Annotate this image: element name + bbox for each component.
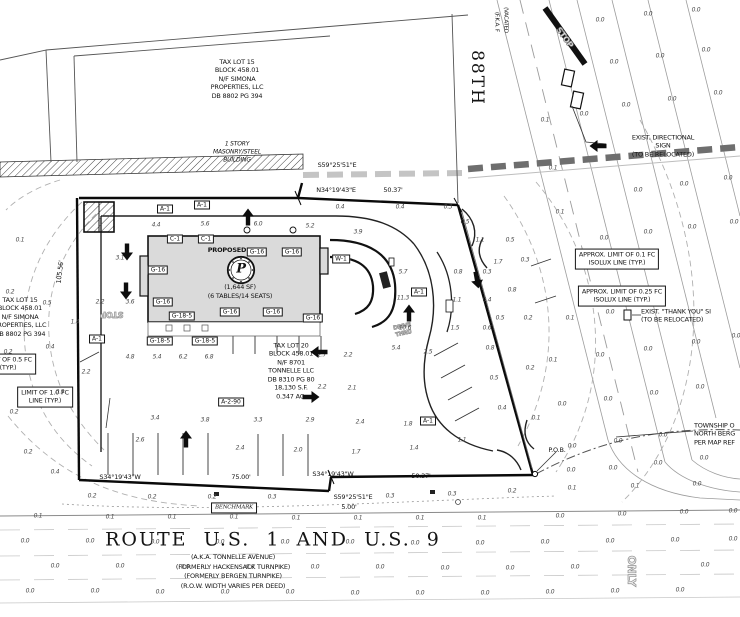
- photometric-value: 0.3: [268, 494, 277, 501]
- photometric-value: 0.0: [692, 7, 701, 14]
- only-pavement-marking: ONLY: [624, 555, 638, 586]
- photometric-value: 2.0: [294, 447, 303, 454]
- photometric-value: 0.5: [43, 300, 52, 307]
- photometric-value: 0.5: [461, 219, 470, 226]
- building-logo-letter: P: [236, 262, 246, 279]
- photometric-value: 3.6: [126, 299, 135, 306]
- photometric-value: 0.1: [541, 117, 550, 124]
- route-formerly-2: (FORMERLY BERGEN TURNPIKE): [184, 572, 282, 580]
- keynote-g-16: G-16: [220, 308, 240, 317]
- photometric-value: 6.8: [205, 354, 214, 361]
- photometric-value: 0.0: [692, 339, 701, 346]
- photometric-value: 0.0: [441, 565, 450, 572]
- traffic-flow-arrow: [120, 283, 133, 300]
- photometric-value: 0.2: [208, 494, 217, 501]
- photometric-value: 0.4: [51, 469, 60, 476]
- photometric-value: 0.1: [568, 485, 577, 492]
- photometric-value: 0.0: [610, 59, 619, 66]
- photometric-value: 2.6: [136, 437, 145, 444]
- photometric-value: 0.5: [506, 237, 515, 244]
- photometric-value: 0.1: [549, 357, 558, 364]
- photometric-value: 0.0: [606, 309, 615, 316]
- photometric-value: 5.6: [201, 221, 210, 228]
- photometric-value: 1.5: [451, 325, 460, 332]
- photometric-value: 2.4: [356, 419, 365, 426]
- photometric-value: 0.0: [346, 539, 355, 546]
- keynote-g-18-5: G-18-5: [169, 312, 195, 321]
- site-plan-canvas: TAX LOT 15 BLOCK 458.01 N/F SIMONA PROPE…: [0, 0, 740, 617]
- keynote-g-16: G-16: [247, 248, 267, 257]
- photometric-value: 11.3: [397, 295, 409, 302]
- keynote-g-16: G-16: [148, 266, 168, 275]
- photometric-value: 0.1: [566, 315, 575, 322]
- photometric-value: 1.4: [71, 319, 80, 326]
- photometric-value: 0.0: [311, 564, 320, 571]
- photometric-value: 0.0: [732, 333, 740, 340]
- photometric-value: 0.4: [396, 204, 405, 211]
- sign-symbol: [561, 69, 574, 87]
- photometric-value: 0.8: [486, 345, 495, 352]
- photometric-value: 0.0: [26, 588, 35, 595]
- photometric-value: 0.6: [483, 325, 492, 332]
- photometric-value: 0.0: [221, 589, 230, 596]
- parcel-note-tax-lot-15-north: TAX LOT 15 BLOCK 458.01 N/F SIMONA PROPE…: [211, 58, 264, 100]
- photometric-value: 0.2: [24, 449, 33, 456]
- photometric-value: 0.1: [16, 237, 25, 244]
- photometric-value: 0.0: [600, 235, 609, 242]
- photometric-value: 0.1: [631, 483, 640, 490]
- photometric-value: 0.0: [659, 432, 668, 439]
- photometric-value: 2.2: [96, 299, 105, 306]
- photometric-value: 0.1: [478, 515, 487, 522]
- photometric-value: 0.0: [558, 401, 567, 408]
- photometric-value: 2.9: [306, 417, 315, 424]
- photometric-value: 1.8: [404, 421, 413, 428]
- photometric-value: 0.0: [376, 564, 385, 571]
- photometric-value: 0.0: [614, 438, 623, 445]
- parcel-note-tax-lot-15-west: TAX LOT 15 BLOCK 458.01 N/F SIMONA PROPE…: [0, 296, 46, 338]
- dimension-label: S34°19'43"W: [99, 473, 140, 481]
- keynote-g-16: G-16: [282, 248, 302, 257]
- photometric-value: 0.0: [644, 11, 653, 18]
- photometric-value: 0.0: [580, 111, 589, 118]
- photometric-value: 0.0: [181, 564, 190, 571]
- photometric-value: 0.0: [86, 538, 95, 545]
- existing-building-note: 1 STORY MASONRY/STEEL BUILDING: [213, 140, 261, 163]
- building-proposed-label: PROPOSED: [208, 246, 247, 254]
- photometric-value: 0.3: [483, 269, 492, 276]
- photometric-value: 2.2: [318, 384, 327, 391]
- photometric-value: 0.0: [91, 588, 100, 595]
- photometric-value: 0.2: [10, 409, 19, 416]
- photometric-value: 0.0: [596, 352, 605, 359]
- photometric-value: 0.8: [508, 287, 517, 294]
- photometric-value: 0.1: [34, 513, 43, 520]
- photometric-value: 0.4: [498, 405, 507, 412]
- note-directional-sign: EXIST. DIRECTIONAL SIGN (TO BE RELOCATED…: [625, 133, 702, 158]
- photometric-value: 0.0: [21, 538, 30, 545]
- photometric-value: 0.2: [526, 365, 535, 372]
- photometric-value: 0.0: [724, 175, 733, 182]
- traffic-flow-arrow: [311, 346, 328, 359]
- note-township-boundary: TOWNSHIP O NORTH BERG PER MAP REF: [694, 421, 735, 446]
- photometric-value: 0.1: [549, 165, 558, 172]
- photometric-value: 0.0: [116, 563, 125, 570]
- photometric-value: 0.1: [532, 415, 541, 422]
- photometric-value: 0.4: [336, 204, 345, 211]
- photometric-value: 0.0: [644, 346, 653, 353]
- pob-label: P.O.B.: [548, 446, 565, 454]
- photometric-value: 0.0: [656, 53, 665, 60]
- keynote-g-18-5: G-18-5: [147, 337, 173, 346]
- keynote-a-1: A-1: [157, 205, 173, 214]
- photometric-value: 0.0: [702, 47, 711, 54]
- photometric-value: 0.0: [680, 509, 689, 516]
- photometric-value: 5.4: [153, 354, 162, 361]
- photometric-value: 5.7: [399, 269, 408, 276]
- photometric-value: 0.0: [729, 508, 738, 515]
- benchmark-label: BENCHMARK: [211, 502, 257, 513]
- traffic-flow-arrow: [469, 271, 485, 290]
- photometric-value: 0.0: [506, 565, 515, 572]
- photometric-value: 0.0: [411, 540, 420, 547]
- photometric-value: 0.3: [521, 257, 530, 264]
- photometric-value: 0.0: [567, 467, 576, 474]
- photometric-value: 0.0: [246, 564, 255, 571]
- street-name-88th-fka: (F.K.A. F: [492, 12, 499, 32]
- photometric-value: 0.0: [611, 588, 620, 595]
- photometric-value: 3.4: [151, 415, 160, 422]
- photometric-value: 0.1: [416, 515, 425, 522]
- photometric-value: 0.0: [556, 513, 565, 520]
- photometric-value: 0.0: [281, 539, 290, 546]
- photometric-value: 0.2: [148, 494, 157, 501]
- route-row-note: (R.O.W. WIDTH VARIES PER DEED): [181, 581, 285, 589]
- photometric-value: 0.2: [6, 289, 15, 296]
- photometric-value: 0.1: [106, 514, 115, 521]
- photometric-value: 1.7: [494, 259, 503, 266]
- route-aka: (A.K.A. TONNELLE AVENUE): [191, 553, 275, 561]
- building-patio-strip: [148, 322, 320, 336]
- photometric-value: 1.1: [453, 297, 462, 304]
- photometric-value: 5.4: [392, 345, 401, 352]
- traffic-flow-arrow: [590, 140, 607, 153]
- dimension-label: S59°25'51"E: [334, 493, 373, 501]
- photometric-value: 0.0: [622, 102, 631, 109]
- dimension-label: S59°25'51"E: [318, 161, 357, 169]
- keynote-a-2-90: A-2-90: [218, 398, 244, 407]
- photometric-value: 0.2: [524, 315, 533, 322]
- photometric-value: 0.1: [556, 209, 565, 216]
- photometric-value: 0.0: [644, 229, 653, 236]
- photometric-value: 0.0: [481, 590, 490, 597]
- photometric-value: 0.0: [596, 17, 605, 24]
- photometric-value: 5.2: [306, 223, 315, 230]
- photometric-value: 0.1: [354, 515, 363, 522]
- photometric-value: 0.0: [671, 537, 680, 544]
- photometric-value: 3.3: [254, 417, 263, 424]
- photometric-value: 0.0: [680, 181, 689, 188]
- photometric-value: 0.0: [546, 589, 555, 596]
- keynote-c-1: C-1: [198, 235, 214, 244]
- thank-you-sign-symbol: [624, 310, 631, 320]
- photometric-value: 2.1: [348, 385, 357, 392]
- photometric-value: 0.0: [571, 564, 580, 571]
- dimension-label: 50.37': [411, 472, 430, 480]
- photometric-value: 0.1: [168, 514, 177, 521]
- photometric-value: 0.0: [693, 481, 702, 488]
- photometric-value: 0.0: [568, 443, 577, 450]
- dimension-label: 5.00': [341, 503, 356, 511]
- keynote-g-16: G-16: [153, 298, 173, 307]
- photometric-value: 0.2: [4, 349, 13, 356]
- traffic-flow-arrow: [403, 305, 416, 322]
- keynote-a-1: A-1: [194, 201, 210, 210]
- photometric-value: 1.7: [352, 449, 361, 456]
- photometric-value: 0.0: [696, 384, 705, 391]
- photometric-value: 0.0: [541, 539, 550, 546]
- photometric-value: 0.0: [701, 562, 710, 569]
- photometric-value: 0.0: [700, 455, 709, 462]
- photometric-value: 0.0: [668, 96, 677, 103]
- traffic-flow-arrow: [121, 244, 134, 261]
- photometric-value: 6.0: [254, 221, 263, 228]
- photometric-value: 1.1: [458, 437, 467, 444]
- photometric-value: 1.1: [476, 237, 485, 244]
- photometric-value: 0.0: [606, 538, 615, 545]
- photometric-value: 0.3: [448, 491, 457, 498]
- photometric-value: 3.8: [201, 417, 210, 424]
- photometric-value: 0.4: [483, 297, 492, 304]
- photometric-value: 0.0: [416, 590, 425, 597]
- stop-pavement-marking-sw: STOP: [100, 309, 123, 319]
- photometric-value: 2.4: [236, 445, 245, 452]
- photometric-value: 3.9: [354, 229, 363, 236]
- street-name-88th-vacated: (VACATED: [501, 7, 508, 33]
- photometric-value: 0.0: [609, 465, 618, 472]
- photometric-value: 2.5: [424, 349, 433, 356]
- photometric-value: 0.1: [292, 515, 301, 522]
- traffic-flow-arrow: [303, 391, 320, 404]
- note-fc-0-5: LIMIT OF 0.5 FC (TYP.): [0, 354, 36, 375]
- keynote-w-1: W-1: [332, 255, 350, 264]
- note-isolux-0-25: APPROX. LIMIT OF 0.25 FC ISOLUX LINE (TY…: [578, 286, 666, 307]
- photometric-value: 0.2: [88, 493, 97, 500]
- note-isolux-0-1: APPROX. LIMIT OF 0.1 FC ISOLUX LINE (TYP…: [575, 249, 659, 270]
- dimension-label: N34°19'43"E: [316, 186, 356, 194]
- photometric-value: 0.0: [51, 563, 60, 570]
- traffic-flow-arrow: [180, 431, 193, 448]
- photometric-value: 1.4: [410, 445, 419, 452]
- keynote-g-16: G-16: [303, 314, 323, 323]
- photometric-value: 0.0: [714, 90, 723, 97]
- photometric-value: 0.0: [634, 187, 643, 194]
- photometric-value: 0.0: [654, 460, 663, 467]
- photometric-value: 2.2: [82, 369, 91, 376]
- photometric-value: 0.0: [286, 589, 295, 596]
- photometric-value: 0.3: [386, 493, 395, 500]
- photometric-value: 0.0: [676, 587, 685, 594]
- photometric-value: 0.4: [46, 344, 55, 351]
- photometric-value: 10.6: [399, 325, 411, 332]
- dimension-label: 50.37': [383, 186, 402, 194]
- photometric-value: 0.0: [216, 539, 225, 546]
- photometric-value: 4.4: [152, 222, 161, 229]
- photometric-value: 0.5: [490, 375, 499, 382]
- photometric-value: 0.0: [730, 219, 739, 226]
- photometric-value: 0.0: [650, 390, 659, 397]
- photometric-value: 0.1: [230, 514, 239, 521]
- keynote-c-1: C-1: [167, 235, 183, 244]
- photometric-value: 0.0: [151, 539, 160, 546]
- photometric-value: 0.8: [454, 269, 463, 276]
- photometric-value: 0.3: [444, 204, 453, 211]
- building-seating-label: (6 TABLES/14 SEATS): [208, 292, 273, 300]
- building-area-label: (1,644 SF): [224, 283, 256, 291]
- keynote-a-1: A-1: [411, 288, 427, 297]
- photometric-value: 0.2: [508, 488, 517, 495]
- photometric-value: 0.0: [618, 511, 627, 518]
- route-formerly-1: (FORMERLY HACKENSACK TURNPIKE): [176, 562, 290, 570]
- keynote-a-1: A-1: [89, 335, 105, 344]
- photometric-value: 0.0: [688, 224, 697, 231]
- photometric-value: 0.0: [604, 396, 613, 403]
- photometric-value: 0.9: [56, 389, 65, 396]
- menu-board-symbol: [379, 271, 391, 289]
- keynote-a-1: A-1: [420, 417, 436, 426]
- photometric-value: 0.0: [351, 590, 360, 597]
- note-thank-you-sign: EXIST. "THANK YOU" SI (TO BE RELOCATED): [641, 308, 711, 325]
- dimension-label: 75.00': [231, 473, 250, 481]
- keynote-g-18-5: G-18-5: [192, 337, 218, 346]
- photometric-value: 0.0: [156, 589, 165, 596]
- photometric-value: 0.0: [476, 540, 485, 547]
- photometric-value: 6.2: [179, 354, 188, 361]
- keynote-g-16: G-16: [263, 308, 283, 317]
- dimension-label: S34°19'43"W: [312, 470, 353, 478]
- street-name-88th: 88TH: [466, 50, 488, 106]
- photometric-value: 4.8: [126, 354, 135, 361]
- traffic-flow-arrow: [242, 209, 255, 226]
- photometric-value: 2.2: [344, 352, 353, 359]
- photometric-value: 0.5: [496, 315, 505, 322]
- photometric-value: 0.0: [729, 536, 738, 543]
